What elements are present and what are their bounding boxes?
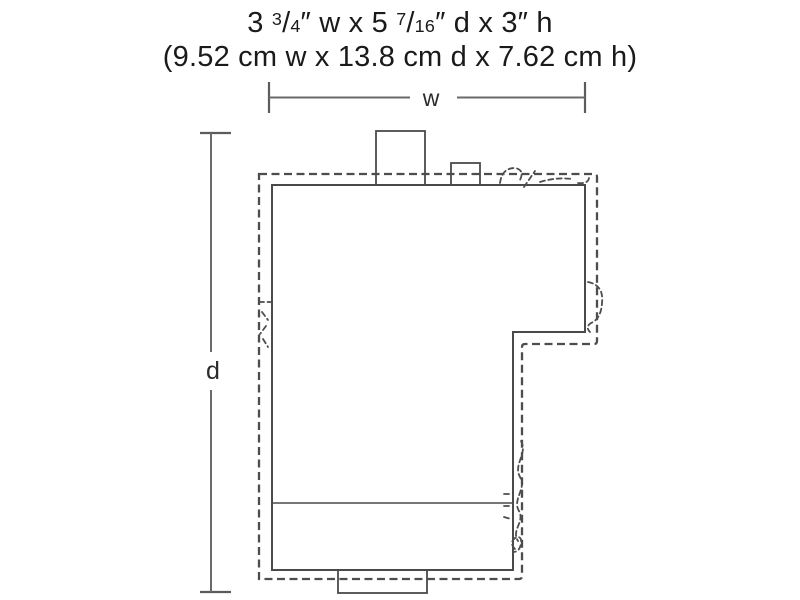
- depth-label: d: [206, 357, 220, 385]
- rough-detail-lower-right-ticks: [504, 494, 512, 519]
- rough-detail-left-marks: [259, 302, 272, 347]
- top-tab-large: [376, 131, 425, 185]
- width-dimension-line: w: [269, 82, 585, 113]
- base-dashed-outline: [259, 174, 597, 579]
- depth-dimension-line: d: [200, 133, 231, 592]
- rough-detail-top-loop: [500, 168, 522, 183]
- rough-detail-right-bulge: [588, 282, 602, 332]
- width-label: w: [422, 85, 440, 111]
- footprint-diagram: w d: [0, 0, 800, 600]
- footprint-diagram-page: 3 3/4″ w x 5 7/16″ d x 3″ h (9.52 cm w x…: [0, 0, 800, 600]
- footprint-shape: [272, 185, 585, 570]
- bottom-tab: [338, 570, 427, 593]
- rough-details: [259, 168, 602, 552]
